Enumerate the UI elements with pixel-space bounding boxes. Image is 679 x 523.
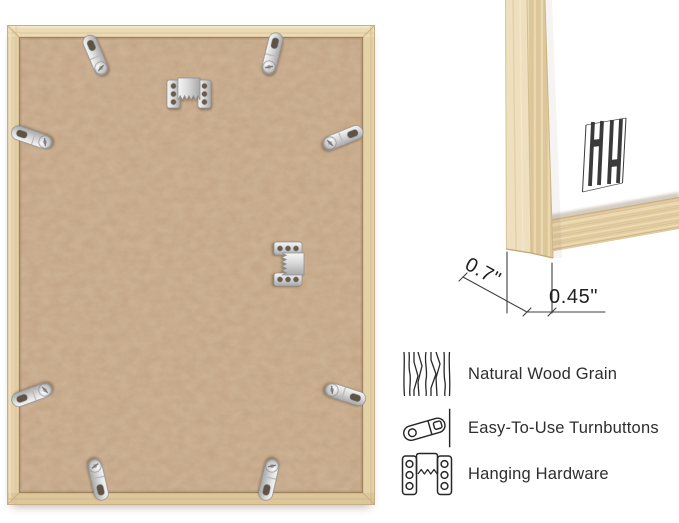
feature-label: Easy-To-Use Turnbuttons — [468, 419, 659, 438]
frame-bottom-rail — [543, 192, 679, 253]
product-image: 0.7" 0.45" Natural Wood Grain — [0, 0, 679, 523]
feature-label: Natural Wood Grain — [468, 365, 617, 384]
frame-back-view — [7, 25, 375, 505]
hanging-hardware-icon — [401, 452, 453, 496]
width-dimension-label: 0.45" — [549, 286, 598, 309]
feature-label: Hanging Hardware — [468, 465, 609, 484]
brand-logo — [583, 118, 627, 192]
mdf-backing-board — [19, 37, 363, 493]
frame-back-graphic — [7, 25, 375, 505]
frame-side-rail — [505, 0, 553, 258]
feature-turnbuttons: Easy-To-Use Turnbuttons — [401, 406, 659, 450]
wood-grain-icon — [401, 352, 453, 396]
feature-wood-grain: Natural Wood Grain — [401, 351, 617, 397]
feature-hanging-hardware: Hanging Hardware — [401, 451, 609, 497]
turnbutton-icon — [401, 407, 453, 449]
